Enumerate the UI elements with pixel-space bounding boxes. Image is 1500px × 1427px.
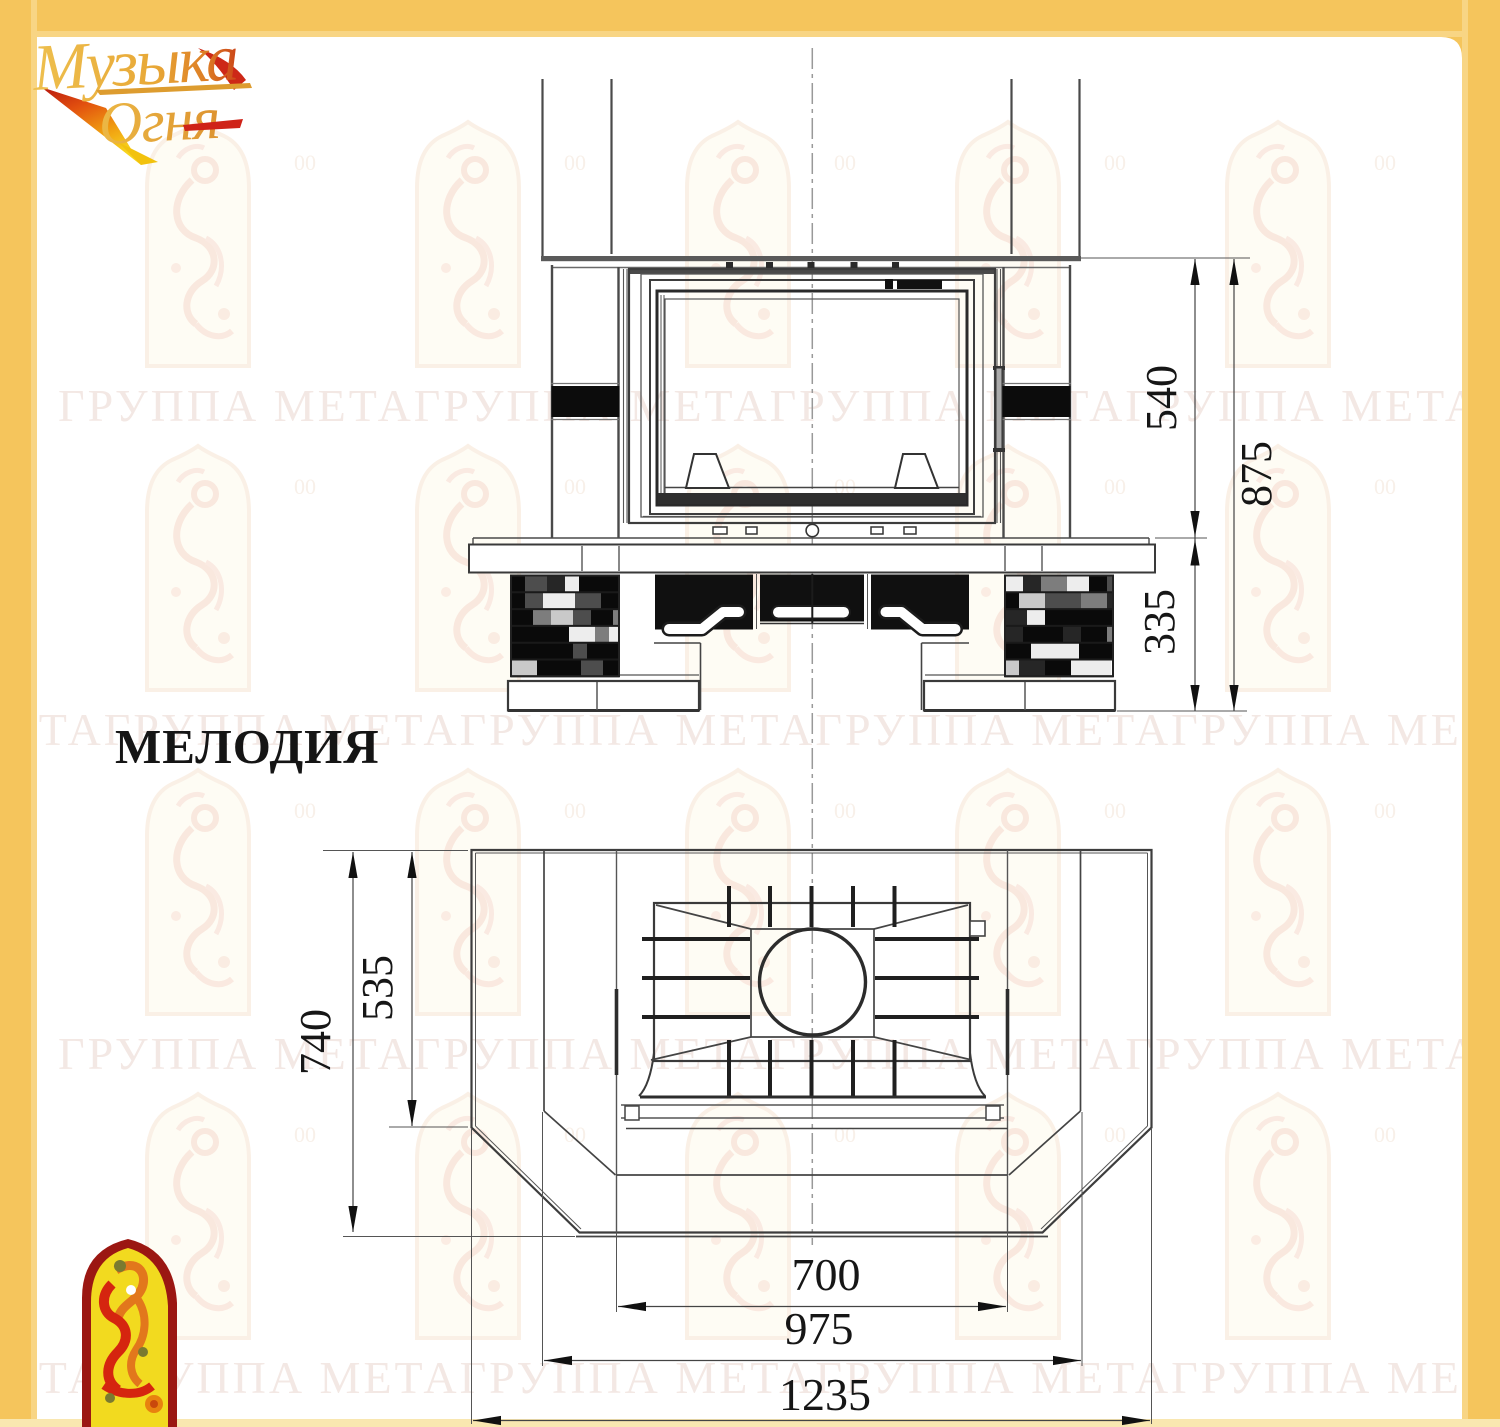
svg-text:875: 875 xyxy=(1232,441,1281,507)
svg-text:740: 740 xyxy=(291,1009,340,1075)
svg-text:ГРУППА МЕТАГРУППА МЕТАГРУППА М: ГРУППА МЕТАГРУППА МЕТАГРУППА МЕТАГРУППА … xyxy=(0,1352,1500,1403)
svg-text:540: 540 xyxy=(1137,365,1186,431)
svg-text:1235: 1235 xyxy=(779,1369,871,1420)
svg-text:ГРУППА МЕТАГРУППА МЕТАГРУППА М: ГРУППА МЕТАГРУППА МЕТАГРУППА МЕТАГРУППА … xyxy=(58,1028,1500,1079)
svg-text:975: 975 xyxy=(785,1303,854,1354)
svg-text:МЕЛОДИЯ: МЕЛОДИЯ xyxy=(115,719,380,774)
svg-text:ГРУППА МЕТАГРУППА МЕТАГРУППА М: ГРУППА МЕТАГРУППА МЕТАГРУППА МЕТАГРУППА … xyxy=(58,380,1500,431)
svg-text:535: 535 xyxy=(353,955,402,1021)
svg-text:700: 700 xyxy=(792,1249,861,1300)
svg-text:Огня: Огня xyxy=(97,85,221,157)
svg-text:335: 335 xyxy=(1135,589,1184,655)
